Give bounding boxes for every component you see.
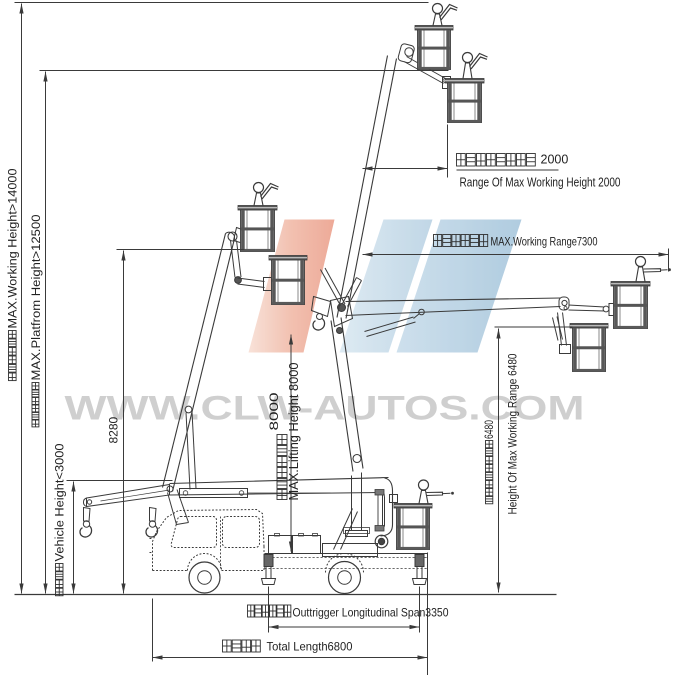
svg-text:Height Of Max Working Range 64: Height Of Max Working Range 6480 [506,353,520,514]
svg-text:Vehicle Height<3000: Vehicle Height<3000 [55,444,67,562]
svg-text:8000: 8000 [267,392,281,430]
svg-text:Outtrigger Longitudinal Span33: Outtrigger Longitudinal Span3350 [293,606,449,620]
svg-text:2000: 2000 [541,153,569,167]
svg-text:Total Length6800: Total Length6800 [267,640,353,654]
svg-text:MAX.Lifting Height 8000: MAX.Lifting Height 8000 [287,362,301,500]
svg-text:8280: 8280 [107,416,121,443]
svg-text:6480: 6480 [484,420,496,439]
svg-text:MAX.Working Range7300: MAX.Working Range7300 [491,235,598,249]
svg-text:MAX.Working Height>14000: MAX.Working Height>14000 [8,169,20,329]
svg-text:MAX.Platfrom Height>12500: MAX.Platfrom Height>12500 [31,215,43,381]
svg-text:Range Of Max Working Height 20: Range Of Max Working Height 2000 [460,175,621,190]
